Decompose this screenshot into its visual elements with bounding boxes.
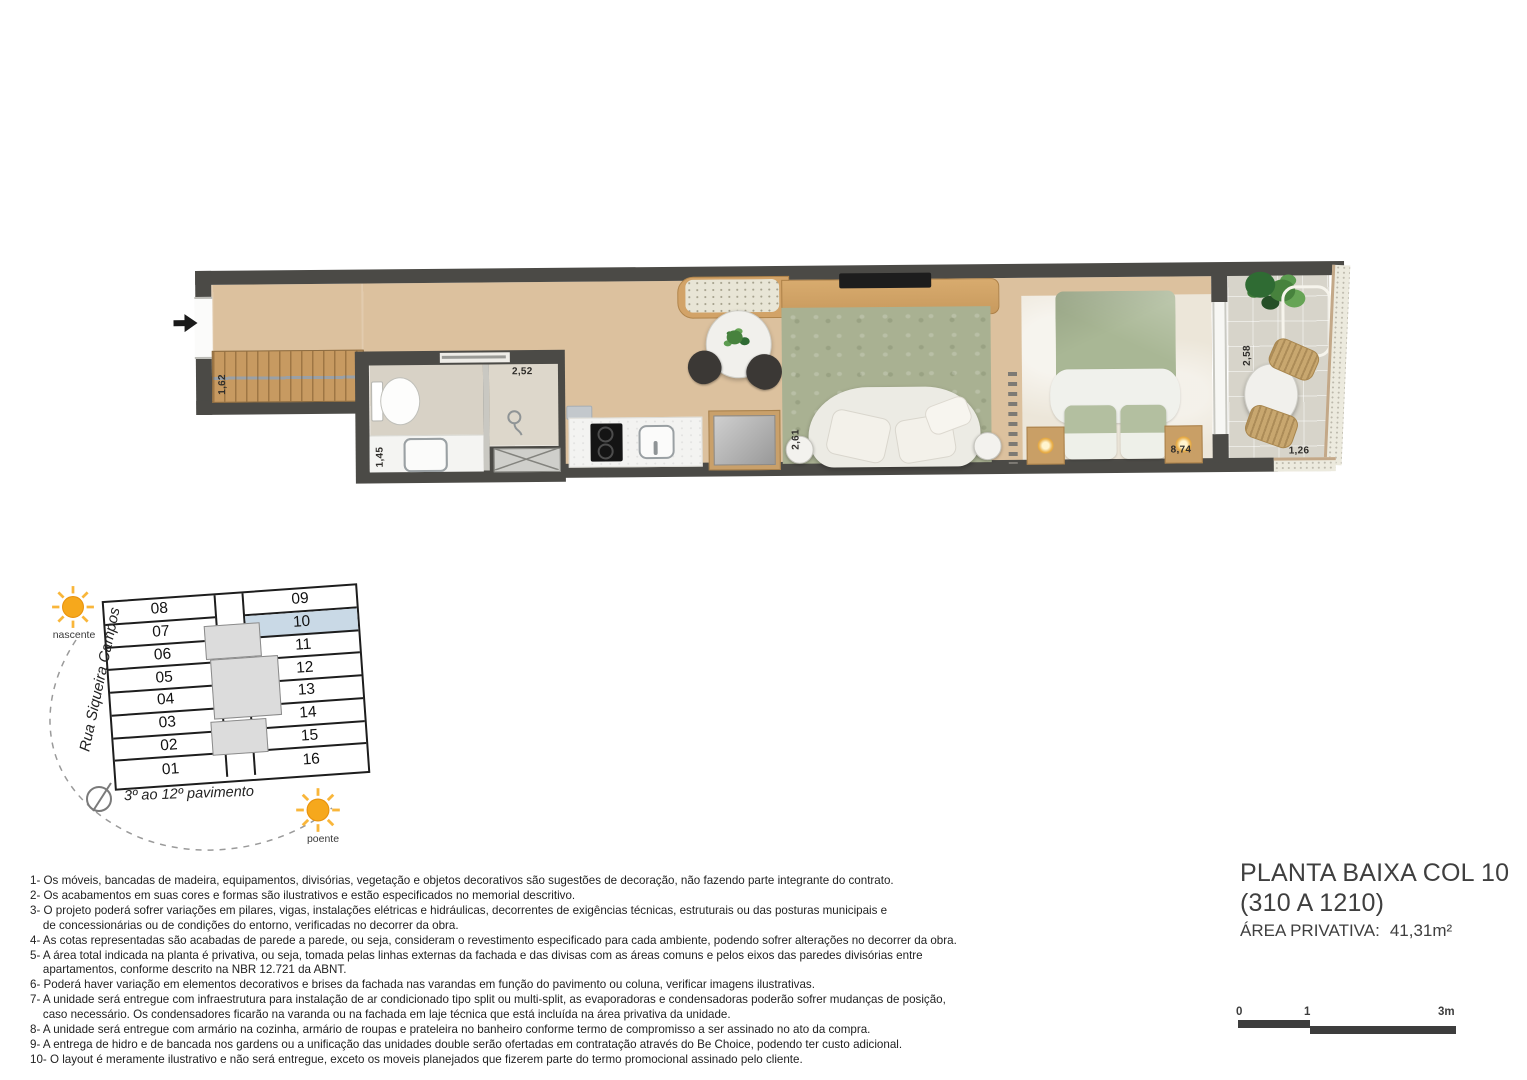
note-item: 3- O projeto poderá sofrer variações em … — [30, 904, 1195, 934]
scale-bar-segment — [1310, 1026, 1456, 1034]
sun-west-label: poente — [300, 833, 346, 845]
plan-title: PLANTA BAIXA COL 10 — [1240, 858, 1509, 888]
sofa — [808, 386, 981, 467]
nightstand — [1026, 426, 1064, 464]
wardrobe-closet — [212, 350, 364, 403]
sun-west-icon — [294, 786, 342, 834]
shower-head-icon — [504, 408, 530, 438]
bench-cushion — [685, 279, 779, 313]
toilet-icon — [380, 377, 420, 425]
key-plan: nascente poente 08 07 06 05 04 03 02 01 … — [40, 582, 420, 877]
pillow — [1064, 405, 1116, 459]
duct-shaft-x — [494, 448, 559, 471]
wall-bedroom-balcony-top — [1211, 272, 1227, 302]
dim-label: 1,62 — [217, 374, 228, 395]
kitchen-faucet — [654, 441, 658, 455]
note-item: 4- As cotas representadas são acabadas d… — [30, 934, 1195, 949]
dim-label: 1,45 — [375, 447, 386, 468]
scale-tick: 1 — [1304, 1006, 1310, 1018]
note-item: 7- A unidade será entregue com infraestr… — [30, 993, 1195, 1023]
north-indicator-icon — [80, 778, 120, 818]
entry-arrow-icon — [173, 314, 199, 332]
note-item: 6- Poderá haver variação em elementos de… — [30, 978, 1195, 993]
table-plant-icon — [727, 330, 743, 344]
floor-plan: 1,62 1,45 2,52 2,61 8,74 2,58 1,26 — [189, 257, 1356, 494]
dim-label: 8,74 — [1171, 444, 1192, 455]
tv-icon — [839, 273, 931, 289]
note-item: 9- A entrega de hidro e de bancada nos g… — [30, 1038, 1195, 1053]
curtain-divider — [1008, 372, 1018, 464]
dim-label: 1,26 — [1289, 445, 1310, 456]
dim-label: 2,58 — [1242, 345, 1253, 366]
cooktop-icon — [590, 423, 622, 461]
balcony-sliding-door — [1212, 302, 1227, 434]
lamp-icon — [1038, 438, 1054, 454]
note-item: 10- O layout é meramente ilustrativo e n… — [30, 1053, 1195, 1068]
notes-block: 1- Os móveis, bancadas de madeira, equip… — [30, 874, 1195, 1068]
kitchen-counter — [568, 417, 702, 468]
note-item: 2- Os acabamentos em suas cores e formas… — [30, 889, 1195, 904]
facade-brise-bottom — [1274, 457, 1336, 472]
side-table — [974, 432, 1002, 460]
note-item: 5- A área total indicada na planta é pri… — [30, 949, 1195, 979]
plan-subtitle: (310 A 1210) — [1240, 888, 1509, 918]
sun-east-label: nascente — [42, 629, 106, 641]
refrigerator-icon — [713, 415, 775, 466]
kitchen-sink — [404, 438, 448, 472]
scale-tick: 0 — [1236, 1006, 1242, 1018]
private-area-value: 41,31m² — [1390, 921, 1452, 940]
scale-bar: 0 1 3m — [1236, 1006, 1460, 1040]
note-item: 1- Os móveis, bancadas de madeira, equip… — [30, 874, 1195, 889]
bathroom-sliding-door — [440, 352, 510, 363]
wall-bedroom-balcony-bottom — [1213, 434, 1229, 462]
elevator-core — [210, 718, 268, 756]
pillow — [1120, 405, 1166, 459]
private-area-line: ÁREA PRIVATIVA:41,31m² — [1240, 921, 1509, 941]
elevator-core — [204, 622, 262, 660]
building-keyplan: 08 07 06 05 04 03 02 01 09 10 11 12 13 1… — [102, 583, 371, 790]
private-area-label: ÁREA PRIVATIVA: — [1240, 921, 1380, 940]
elevator-core — [210, 655, 282, 720]
scale-bar-segment — [1238, 1020, 1310, 1028]
title-block: PLANTA BAIXA COL 10 (310 A 1210) ÁREA PR… — [1240, 858, 1509, 941]
balcony-plants-icon — [1245, 272, 1275, 298]
keyplan-left-column: 08 07 06 05 04 03 02 01 — [104, 595, 228, 784]
sun-east-icon — [50, 584, 96, 630]
note-item: 8- A unidade será entregue com armário n… — [30, 1023, 1195, 1038]
scale-tick: 3m — [1438, 1006, 1455, 1018]
dim-label: 2,61 — [790, 429, 801, 450]
dim-label: 2,52 — [512, 366, 533, 377]
